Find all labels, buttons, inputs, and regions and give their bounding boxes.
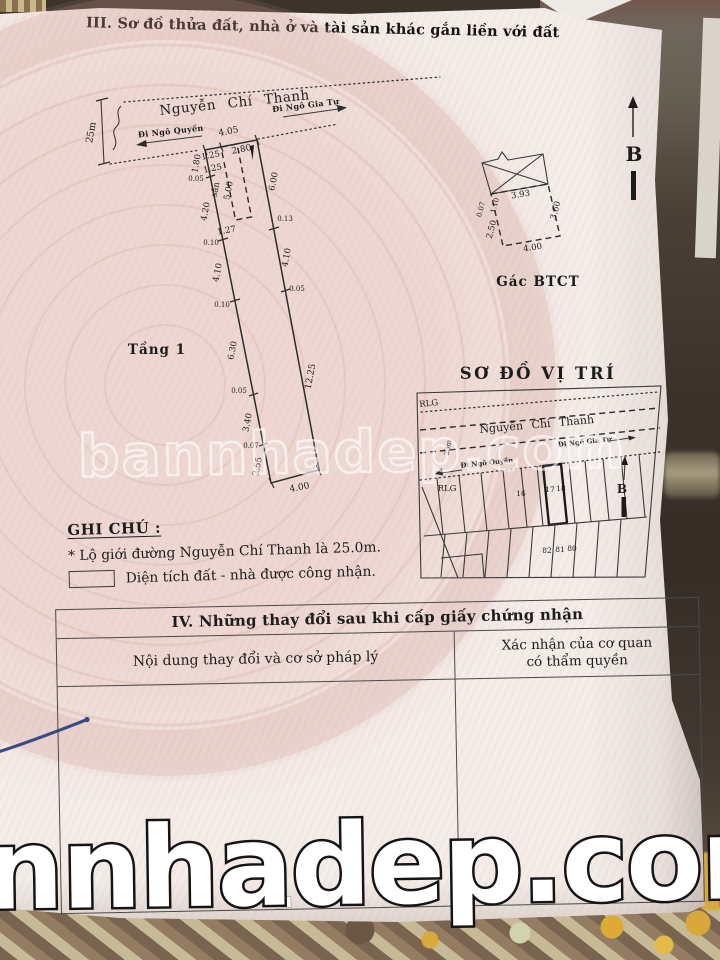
watermark-bottom: nnhadep.com — [0, 794, 720, 936]
location-map-title: SƠ ĐỒ VỊ TRÍ — [460, 361, 617, 383]
section4-col2-line1: Xác nhận của cơ quan — [501, 634, 652, 654]
map-rlg-bottom: RLG — [438, 484, 457, 494]
map-rlg-top: RLG — [419, 398, 439, 410]
photo-of-land-certificate: { "document": { "section3_title": "III. … — [0, 0, 720, 960]
compass-bar — [631, 171, 636, 200]
mezzanine-dim-right: 3.60 — [549, 200, 564, 221]
section4-col2-header: Xác nhận của cơ quan có thẩm quyền — [454, 627, 700, 679]
compass-north-label: B — [626, 142, 643, 166]
section4-col2-line2: có thẩm quyền — [526, 652, 628, 671]
mezzanine-dim-top: 3.93 — [511, 189, 531, 202]
notes-line1: * Lộ giới đường Nguyễn Chí Thanh là 25.0… — [68, 538, 438, 564]
mezzanine-dim-bottom: 4.00 — [523, 242, 543, 255]
map-compass-bar — [622, 497, 627, 517]
dim-left-1: 0.05 — [188, 175, 204, 183]
floor-label: Tầng 1 — [128, 342, 186, 358]
map-parcel-17: 17 — [545, 485, 555, 494]
dim-right-3: 0.05 — [289, 285, 305, 293]
map-north-label: B — [617, 482, 627, 496]
north-compass: B — [626, 96, 643, 200]
map-parcel-82: 82 — [542, 546, 552, 555]
legend-rectangle-symbol — [69, 570, 115, 588]
map-parcel-80: 80 — [567, 544, 577, 553]
dim-left-3: 0.10 — [203, 239, 219, 247]
dim-right-1: 0.13 — [277, 215, 293, 223]
notes-block: GHI CHÚ : * Lộ giới đường Nguyễn Chí Tha… — [67, 511, 439, 588]
watermark-middle: bannhadep.com — [77, 413, 627, 491]
dim-left-5: 0.10 — [214, 301, 230, 309]
dim-left-7: 0.05 — [231, 387, 247, 395]
map-arrow-right-head — [628, 436, 636, 441]
map-parcel-81: 81 — [555, 545, 565, 554]
map-parcel-16: 16 — [516, 489, 526, 498]
map-parcel-18: 18 — [556, 484, 566, 493]
north-arrow-icon — [628, 96, 638, 108]
mezzanine-caption: Gác BTCT — [496, 274, 579, 290]
section4-col1-header: Nội dung thay đổi và cơ sở pháp lý — [57, 632, 455, 687]
